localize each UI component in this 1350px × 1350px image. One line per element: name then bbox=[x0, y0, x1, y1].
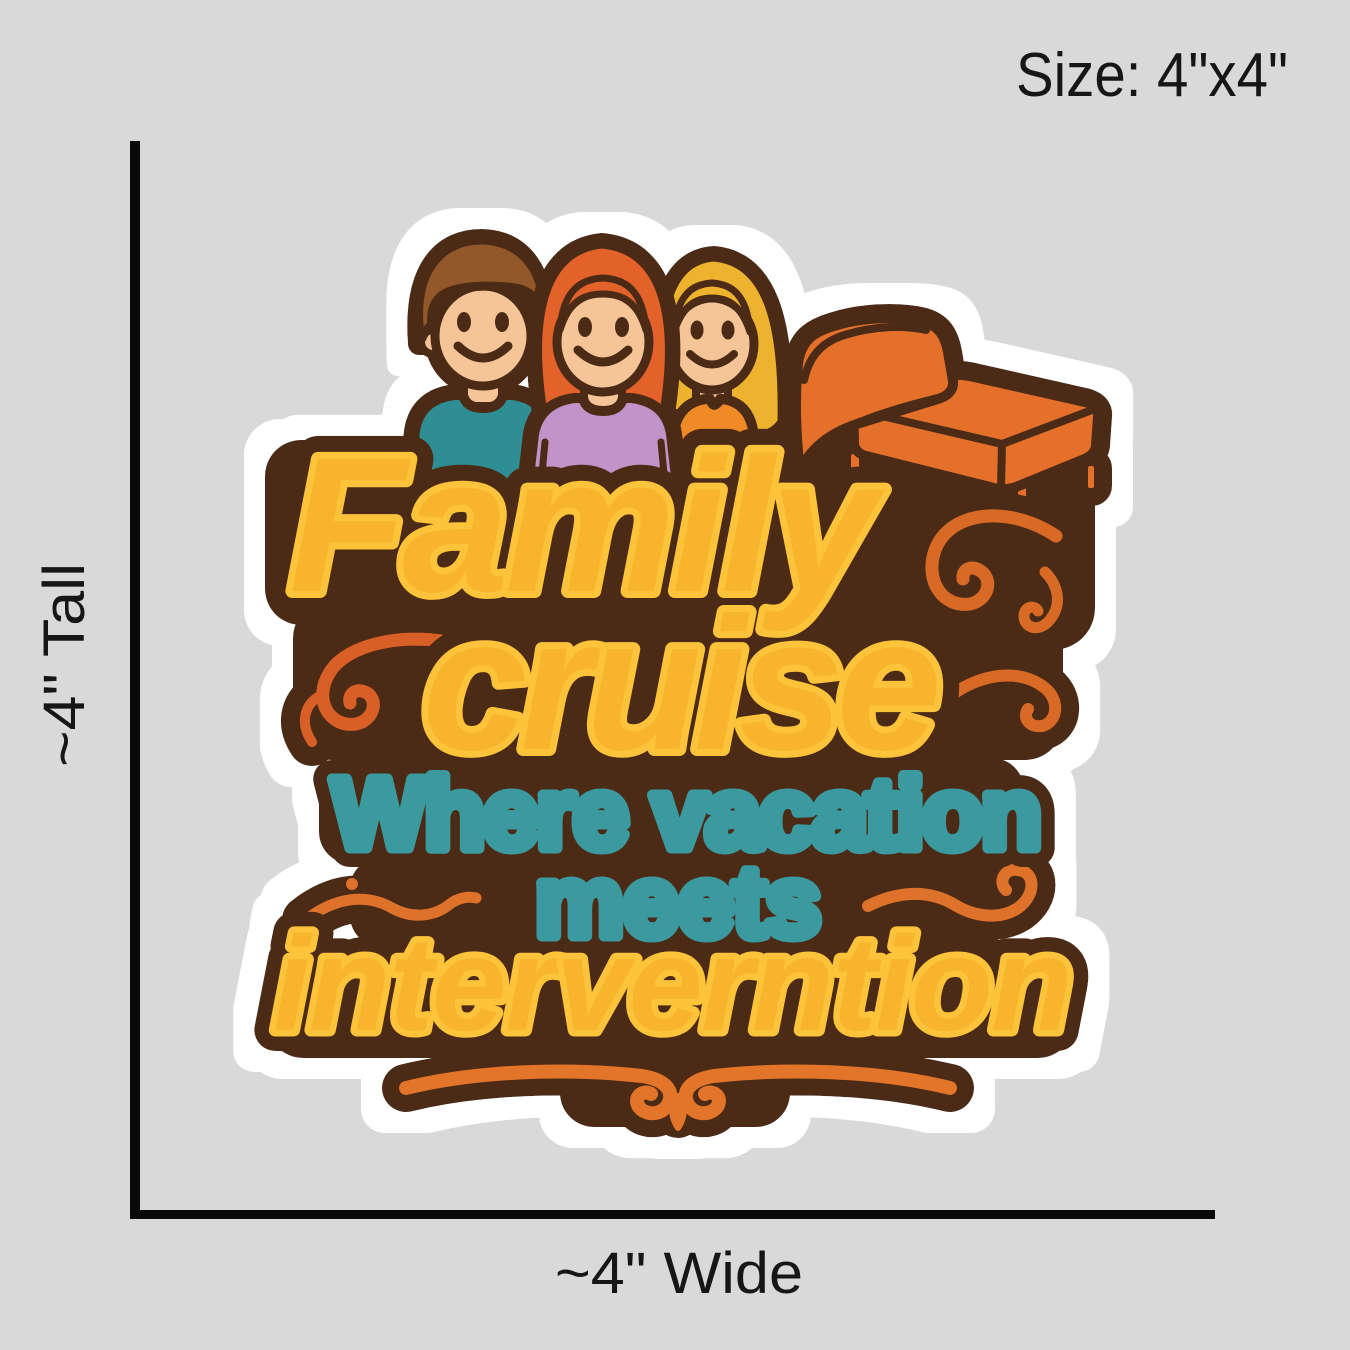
svg-text:Size: 4"x4": Size: 4"x4" bbox=[1016, 41, 1288, 110]
svg-text:~4" Wide: ~4" Wide bbox=[555, 1241, 803, 1306]
svg-text:interverntion: interverntion bbox=[273, 910, 1073, 1059]
svg-text:~4" Tall: ~4" Tall bbox=[32, 563, 97, 767]
